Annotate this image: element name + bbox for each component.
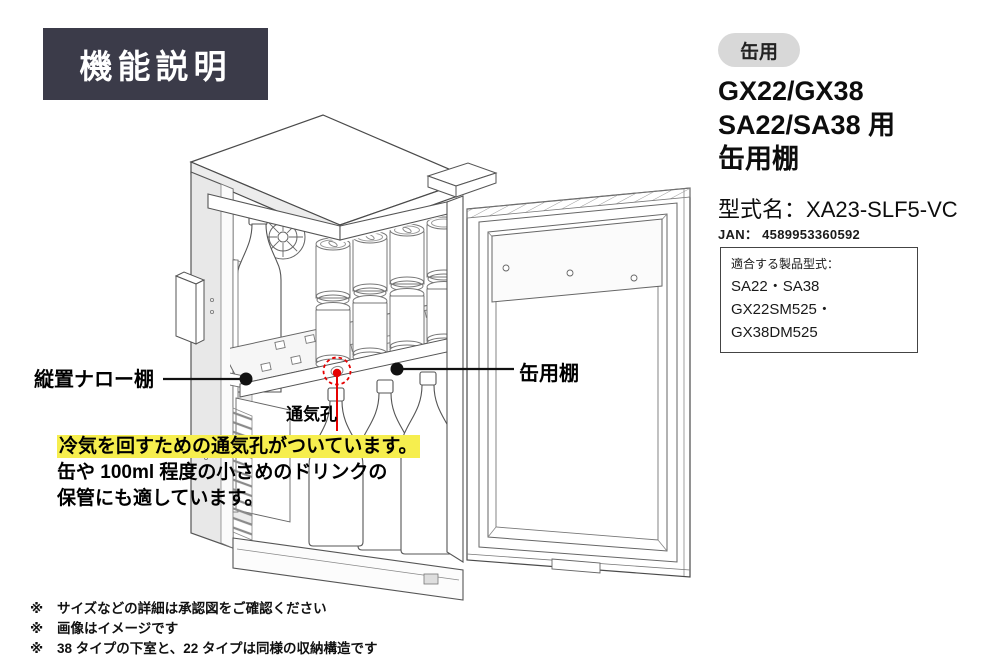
page: { "colors": { "title_bg": "#3b3b49", "pi…: [0, 0, 1000, 666]
compatible-models-line-1: SA22・SA38: [731, 275, 907, 298]
footnote-marker: ※: [30, 599, 57, 619]
page-title-badge: 機能説明: [43, 28, 268, 100]
category-badge-label: 缶用: [740, 37, 778, 64]
footnote-marker: ※: [30, 619, 57, 639]
jan-label: JAN：: [718, 227, 758, 242]
feature-description-line-3: 保管にも適しています。: [57, 486, 420, 512]
product-title-line-3: 缶用棚: [718, 142, 895, 176]
product-title-line-2: SA22/SA38 用: [718, 108, 895, 142]
footnote-row: ※ サイズなどの詳細は承認図をご確認ください: [30, 599, 378, 619]
category-badge: 缶用: [718, 33, 800, 67]
footnotes: ※ サイズなどの詳細は承認図をご確認ください ※ 画像はイメージです ※ 38 …: [30, 599, 378, 659]
footnote-row: ※ 画像はイメージです: [30, 619, 378, 639]
model-name: 型式名：XA23-SLF5-VC: [718, 192, 958, 224]
footnote-row: ※ 38 タイプの下室と、22 タイプは同様の収納構造です: [30, 639, 378, 659]
footnote-text: 画像はイメージです: [57, 619, 178, 639]
page-title: 機能説明: [80, 40, 232, 88]
callout-vent-hole: 通気孔: [286, 400, 337, 425]
feature-description: 冷気を回すための通気孔がついています。 缶や 100ml 程度の小さめのドリンク…: [57, 434, 420, 512]
side-box: [176, 272, 204, 344]
jan-value: 4589953360592: [762, 227, 860, 242]
compatible-models-box: 適合する製品型式： SA22・SA38 GX22SM525・GX38DM525: [720, 247, 918, 353]
feature-description-highlight: 冷気を回すための通気孔がついています。: [57, 435, 420, 458]
footnote-text: サイズなどの詳細は承認図をご確認ください: [57, 599, 327, 619]
jan-code: JAN： 4589953360592: [718, 224, 860, 243]
compatible-models-title: 適合する製品型式：: [731, 255, 907, 272]
model-label: 型式名：: [718, 197, 806, 222]
footnote-text: 38 タイプの下室と、22 タイプは同様の収納構造です: [57, 639, 378, 659]
model-value: XA23-SLF5-VC: [806, 197, 958, 222]
product-title: GX22/GX38 SA22/SA38 用 缶用棚: [718, 74, 895, 176]
feature-description-line-2: 缶や 100ml 程度の小さめのドリンクの: [57, 460, 420, 486]
footnote-marker: ※: [30, 639, 57, 659]
callout-narrow-shelf: 縦置ナロー棚: [34, 363, 154, 392]
product-title-line-1: GX22/GX38: [718, 74, 895, 108]
compatible-models-line-2: GX22SM525・GX38DM525: [731, 298, 907, 344]
callout-can-shelf: 缶用棚: [519, 357, 579, 386]
